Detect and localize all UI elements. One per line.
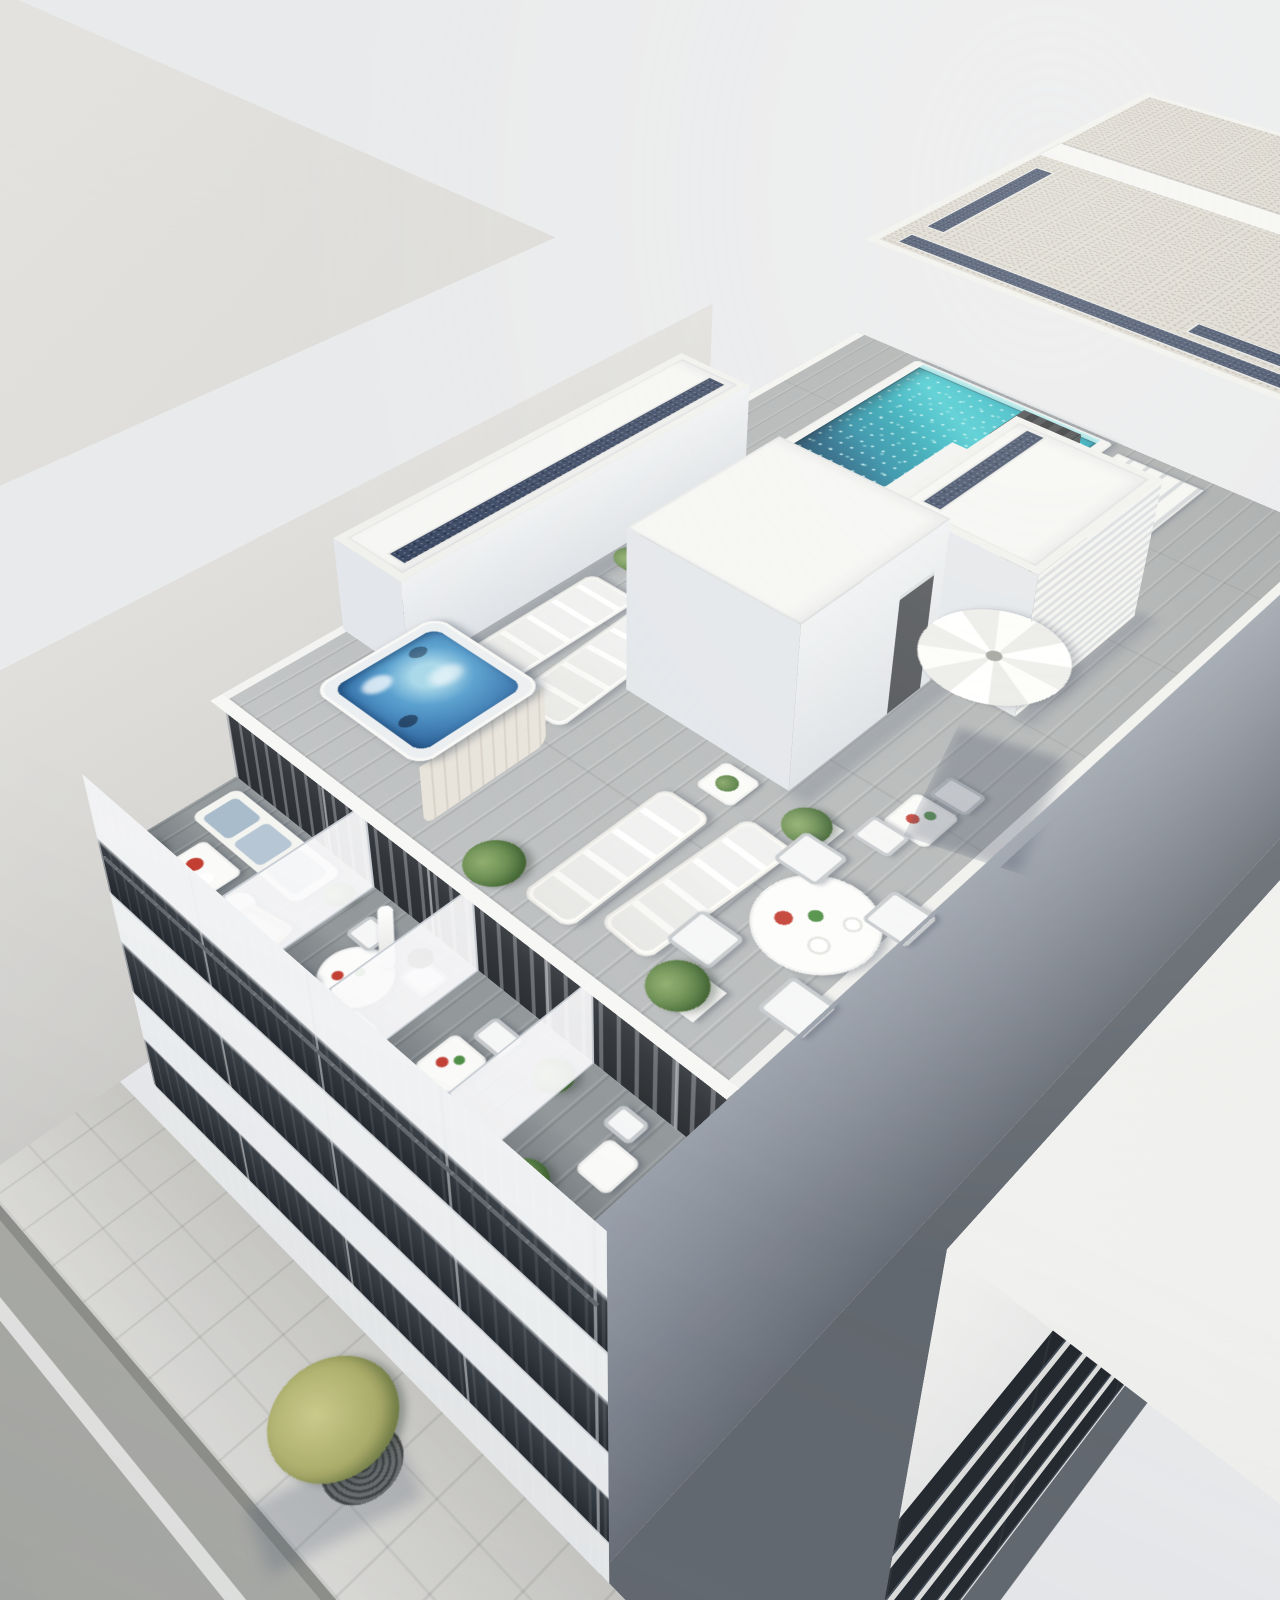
jet-seat [405,644,431,660]
world-3d [0,173,1280,1600]
roof-parapet-volume [1040,144,1280,313]
balcony-chair [601,1103,651,1145]
tomato [770,908,796,928]
table-plant [710,772,744,795]
foam [356,671,398,698]
parasol-finial [983,649,1006,664]
lime [805,908,827,925]
lounger-side-table [695,761,762,808]
architectural-render-scene [0,0,1280,1600]
sofa-cushion [201,797,262,840]
leaf [451,1054,467,1067]
flower [433,1055,451,1070]
foam [423,660,470,690]
plate [802,933,835,958]
jet-seat [395,712,422,730]
